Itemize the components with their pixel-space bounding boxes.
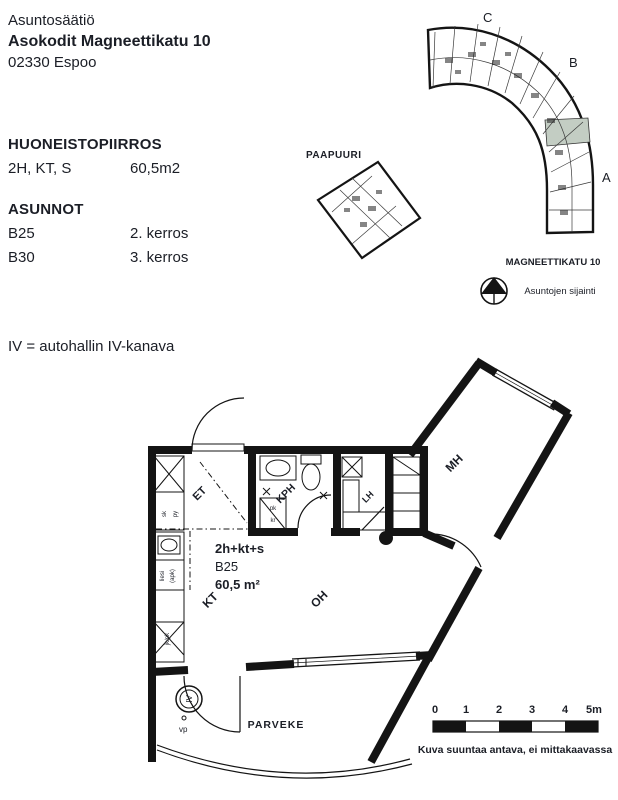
drawing-canvas: C B A PAAPUURI MAGNEETTIKATU 10 Asuntoje…	[0, 0, 618, 800]
closet-sk-label: sk	[162, 510, 168, 517]
stove-label: liesi	[160, 571, 166, 581]
street-label: MAGNEETTIKATU 10	[506, 257, 601, 268]
section-a-label: A	[602, 170, 611, 185]
scale-tick: 3	[529, 704, 535, 716]
closet-py-label: py	[173, 511, 179, 517]
iv-duct-label: IV	[185, 695, 194, 703]
unit-area-label: 60,5 m²	[215, 577, 260, 592]
site-plan: C B A PAAPUURI MAGNEETTIKATU 10 Asuntoje…	[306, 10, 611, 304]
washer-pk-label: pk	[270, 506, 277, 512]
window-oh	[292, 652, 420, 667]
balcony-door	[184, 676, 240, 732]
scale-tick: 4	[562, 704, 569, 716]
section-b-label: B	[569, 55, 578, 70]
location-legend-label: Asuntojen sijainti	[524, 286, 595, 297]
sauna-door-leaf	[362, 507, 384, 530]
room-label-lh: LH	[360, 489, 376, 505]
section-c-label: C	[483, 10, 492, 25]
room-label-kph: KPH	[274, 482, 298, 506]
unit-id-label: B25	[215, 559, 238, 574]
fridge-freezer-label: jk/pk	[165, 632, 171, 646]
room-label-kt: KT	[200, 589, 222, 611]
scale-caption: Kuva suuntaa antava, ei mittakaavassa	[418, 744, 613, 756]
water-point-icon	[182, 716, 186, 720]
unit-type-label: 2h+kt+s	[215, 541, 264, 556]
sauna-bench	[343, 480, 359, 512]
bathroom-door-arc	[298, 495, 331, 528]
window-mh	[492, 369, 557, 410]
room-label-parveke: PARVEKE	[248, 719, 305, 731]
shelf-closet	[393, 457, 420, 529]
neighbor-building-label: PAAPUURI	[306, 150, 361, 161]
neighbor-building	[318, 162, 420, 258]
washer-kr-label: kr	[271, 518, 276, 524]
toilet-icon	[301, 455, 321, 490]
water-point-label: vp	[179, 725, 188, 734]
floor-plan: sk py pk kr	[148, 361, 569, 778]
floor-drain-icon	[263, 488, 270, 495]
hall-closets	[154, 456, 184, 530]
sink-icon	[260, 456, 296, 480]
kitchen-sink-icon	[158, 536, 180, 554]
column-dot	[379, 531, 393, 545]
dishwasher-label: (apk)	[170, 569, 176, 583]
walls-layer	[148, 361, 569, 762]
north-arrow-icon	[481, 277, 507, 304]
scale-bar: 0 1 2 3 4 5m Kuva suuntaa antava, ei mit…	[418, 704, 613, 756]
scale-tick: 2	[496, 704, 502, 716]
room-label-oh: OH	[308, 588, 331, 611]
room-label-mh: MH	[443, 452, 466, 475]
scale-tick: 1	[463, 704, 469, 716]
unit-id-block: 2h+kt+s B25 60,5 m²	[215, 541, 264, 592]
scale-tick: 5m	[586, 704, 602, 716]
entry-door	[192, 398, 244, 451]
room-label-et: ET	[191, 484, 210, 503]
scale-tick: 0	[432, 704, 438, 716]
